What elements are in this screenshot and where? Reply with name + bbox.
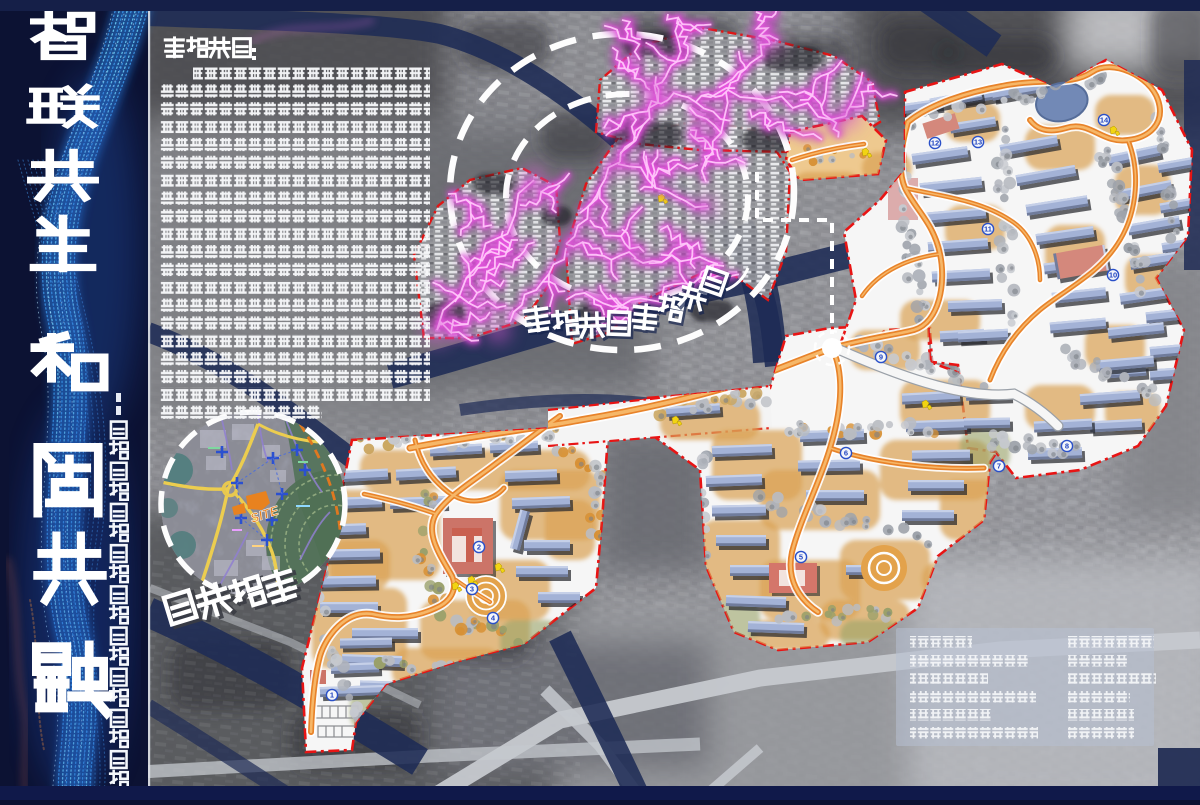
svg-text:3: 3 — [470, 585, 474, 594]
svg-text:12: 12 — [931, 139, 939, 148]
svg-text:1: 1 — [330, 691, 334, 700]
svg-text:14: 14 — [1100, 116, 1109, 125]
svg-text:6: 6 — [844, 449, 848, 458]
svg-text:2: 2 — [477, 543, 481, 552]
svg-text:9: 9 — [879, 353, 883, 362]
svg-text:10: 10 — [1109, 271, 1117, 280]
svg-text:13: 13 — [974, 138, 982, 147]
svg-text:5: 5 — [799, 553, 803, 562]
svg-text:11: 11 — [984, 225, 992, 234]
svg-text:7: 7 — [997, 462, 1001, 471]
svg-text:8: 8 — [1065, 442, 1069, 451]
